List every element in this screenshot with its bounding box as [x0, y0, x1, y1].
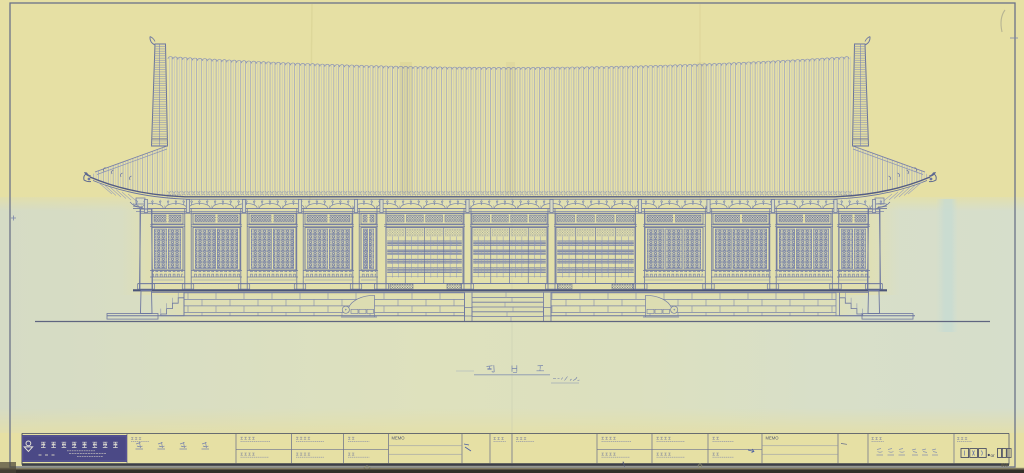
- svg-text:MEMO: MEMO: [392, 436, 406, 441]
- svg-text:or: or: [991, 453, 996, 458]
- svg-text:866: 866: [1001, 462, 1009, 467]
- svg-text:MEMO: MEMO: [766, 436, 780, 441]
